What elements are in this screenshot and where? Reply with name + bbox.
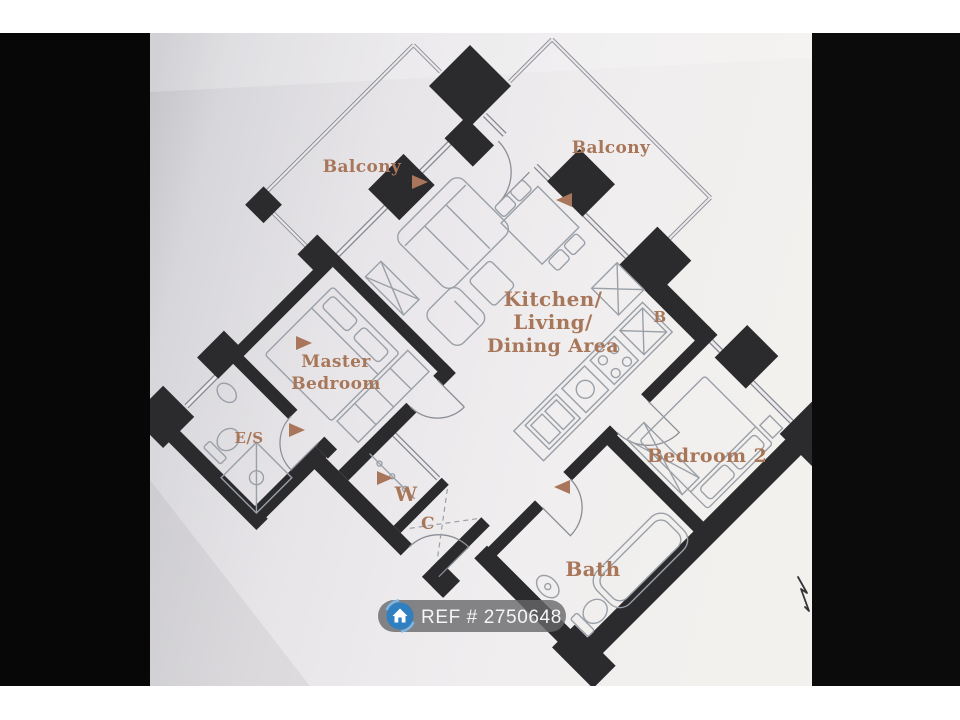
room-label-balcony-left: Balcony <box>323 157 402 177</box>
letterbox-left-bar <box>0 33 150 686</box>
room-label-boiler: B <box>653 308 666 326</box>
ref-badge-text: REF # 2750648 <box>421 607 562 628</box>
room-label-master-line2: Bedroom <box>291 374 381 394</box>
ref-badge: REF # 2750648 <box>378 600 566 632</box>
paper <box>150 33 812 686</box>
room-label-wardrobe: W <box>394 482 418 506</box>
room-label-kitchen-line2: Living/ <box>513 310 593 334</box>
room-label-kitchen-line3: Dining Area <box>487 335 619 357</box>
letterbox-right-bar <box>812 33 960 686</box>
room-label-ensuite: E/S <box>235 429 264 447</box>
floorplan-photo: Balcony Balcony Kitchen/ Living/ Dining … <box>0 0 960 720</box>
room-label-kitchen-line1: Kitchen/ <box>504 287 603 311</box>
room-label-bedroom2: Bedroom 2 <box>647 445 767 467</box>
room-label-balcony-right: Balcony <box>572 138 651 158</box>
room-label-bath: Bath <box>565 557 620 581</box>
room-label-cupboard: C <box>421 514 435 534</box>
room-label-master-line1: Master <box>301 352 371 372</box>
